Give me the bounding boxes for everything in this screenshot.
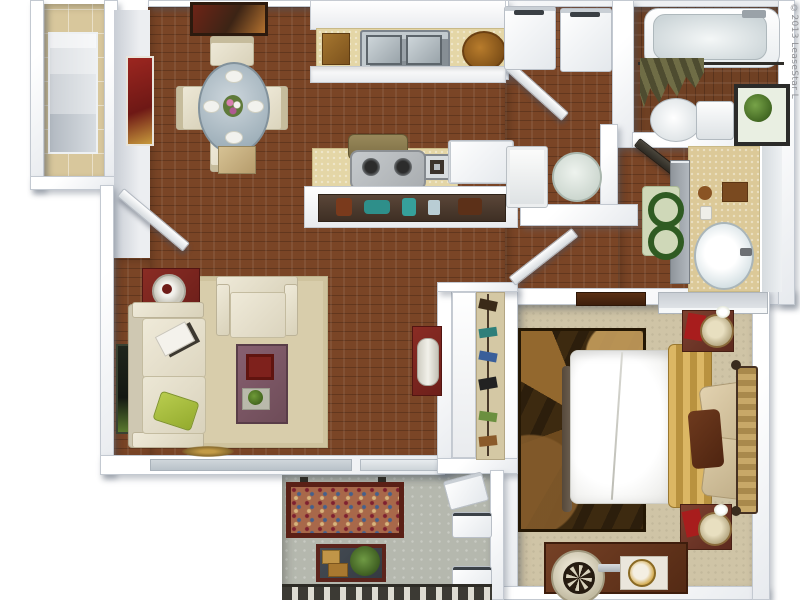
patio-bench: [286, 482, 404, 538]
console-lamp: [417, 338, 439, 386]
sliding-glass-door: [360, 459, 440, 471]
nook-table: [552, 152, 602, 202]
sofa-arm-top: [132, 302, 204, 318]
burner-right: [394, 158, 412, 176]
decor-teal-vase: [402, 198, 416, 216]
sink-basin-left: [366, 35, 402, 65]
dining-wall-shelf: [218, 146, 256, 174]
dining-centerpiece: [223, 95, 243, 117]
armchair-seat: [230, 292, 286, 338]
lamp-finial: [162, 284, 172, 294]
coffee-table-red-tray: [246, 354, 274, 380]
nightstand-2-lamp: [698, 512, 732, 546]
place-setting-right: [247, 100, 264, 113]
tray-clock: [628, 559, 656, 587]
bed-accent-pillow: [688, 409, 725, 470]
sink-basin-right: [406, 35, 442, 65]
sofa-arm-bottom: [132, 432, 204, 448]
wall-patio-right: [490, 470, 504, 600]
bed-duvet: [570, 350, 678, 504]
nightstand-2-flowers: [714, 504, 728, 516]
dining-red-wall-art: [126, 56, 154, 146]
floor-medallion: [182, 446, 234, 457]
toilet-bowl: [650, 98, 702, 142]
decor-teal-bowl: [364, 200, 390, 214]
toiletry-tray: [722, 182, 748, 202]
wall-hallcloset-top: [437, 282, 518, 292]
bath-rug-ring-2: [648, 224, 684, 260]
floor-plan: ©2013 LeaseStar L: [0, 0, 800, 600]
living-window: [150, 459, 352, 471]
refrigerator: [448, 140, 514, 184]
armchair-arm-left: [216, 284, 230, 336]
washer: [504, 6, 556, 70]
place-setting-left: [203, 100, 220, 113]
kitchen-cabinet-fronts: [310, 66, 506, 83]
washer-controls: [514, 10, 544, 15]
coffee-table-plant: [248, 390, 263, 405]
bath-rug-ring-1: [648, 192, 684, 228]
place-setting-bottom: [225, 131, 243, 144]
dresser-handle: [598, 564, 622, 572]
nightstand-1-flowers: [716, 306, 730, 318]
bedroom-media-chest: [576, 292, 646, 306]
copyright-text: ©2013 LeaseStar L: [789, 4, 799, 99]
patio-ac-unit-1: [452, 512, 492, 538]
vanity-faucet: [740, 248, 752, 256]
woven-basket: [462, 31, 506, 71]
closet-clothes-6: [479, 435, 498, 447]
decor-brown-pot: [458, 198, 482, 215]
closet-rod: [487, 294, 489, 456]
bathtub-basin: [653, 14, 767, 60]
shower-head: [742, 10, 766, 18]
burner-left: [362, 158, 380, 176]
patio-book-1: [322, 550, 340, 564]
kitchen-upper-cabinets: [310, 0, 506, 30]
vanity-cup: [700, 206, 712, 220]
patio-plant: [350, 546, 380, 576]
decor-brown-vase: [336, 198, 352, 216]
stove-cooktop: [350, 150, 426, 190]
closet-sliding-door: [452, 292, 476, 458]
patio-railing: [282, 584, 492, 600]
place-setting-top: [225, 70, 243, 83]
wall-nook-right: [600, 124, 618, 216]
patio-book-2: [328, 563, 348, 577]
wall-living-left: [100, 185, 114, 475]
bedpost-top: [731, 360, 741, 370]
fan-blades: [563, 562, 595, 594]
decor-glass: [428, 200, 440, 215]
etagere-plant: [744, 94, 772, 122]
cutting-board: [322, 33, 350, 65]
dryer: [560, 8, 612, 72]
wall-closet-left: [30, 0, 44, 190]
entry-shelving-unit: [48, 32, 98, 154]
nook-bench: [506, 146, 548, 208]
dryer-controls: [570, 12, 600, 17]
armchair-arm-right: [284, 284, 298, 336]
bed-headboard: [736, 366, 758, 514]
vanity-mirror: [760, 146, 782, 292]
nightstand-1-lamp: [700, 314, 734, 348]
toilet-tank: [696, 101, 734, 140]
bedpost-bottom: [731, 506, 741, 516]
dining-painting: [190, 2, 268, 36]
prep-sink: [424, 154, 450, 180]
soap-dish: [698, 186, 712, 200]
vanity-sink: [694, 222, 754, 290]
